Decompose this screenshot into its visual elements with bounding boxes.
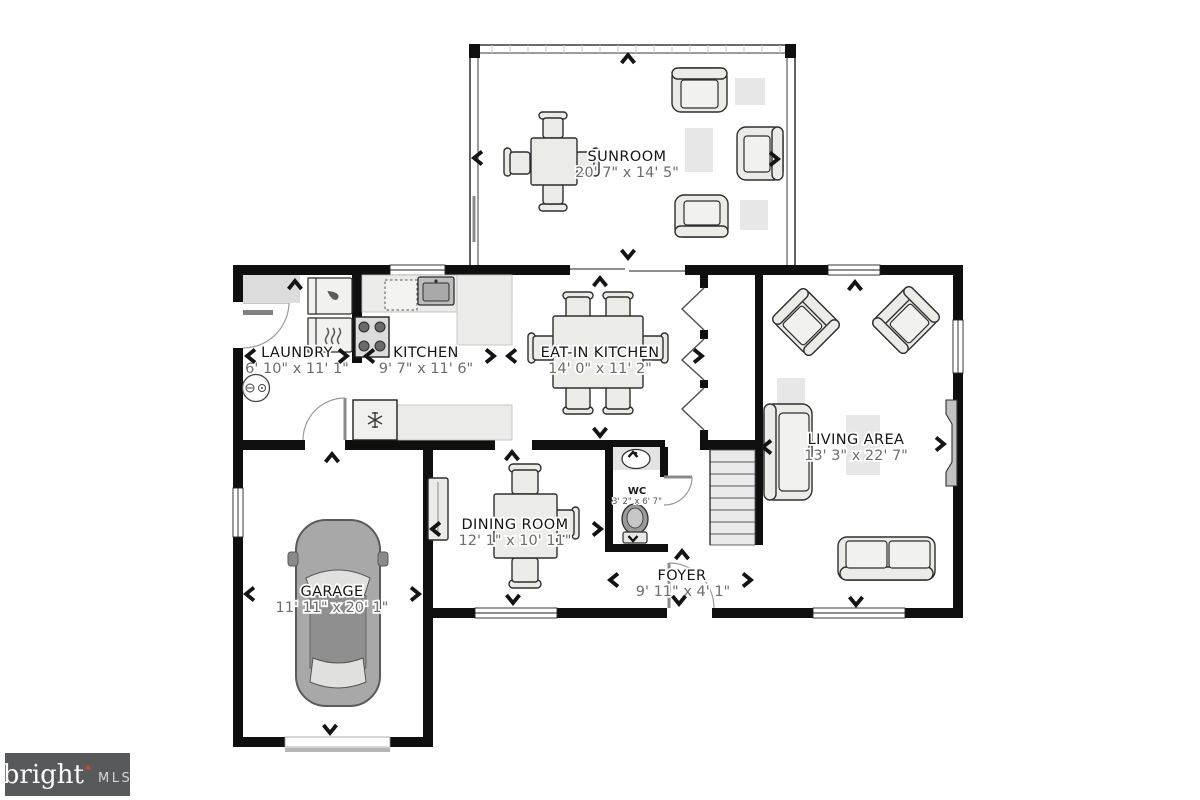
rug — [740, 200, 768, 230]
arrow-right-icon — [411, 588, 419, 601]
foyer: FOYER 9' 11" x 4' 1" — [636, 568, 730, 600]
wc-door — [664, 477, 692, 505]
room-dims-kitchen: 9' 7" x 11' 6" — [379, 361, 473, 377]
room-label-garage: GARAGE — [300, 584, 363, 600]
staircase — [710, 450, 755, 545]
refrigerator — [353, 400, 397, 440]
arrow-right-icon — [593, 523, 601, 536]
arrow-up-icon — [326, 454, 339, 462]
sunroom-corner-post — [785, 44, 796, 58]
room-label-foyer: FOYER — [657, 568, 706, 584]
arrow-up-icon — [676, 551, 689, 559]
room-label-wc: WC — [628, 486, 646, 497]
sunroom-armchair — [675, 195, 728, 237]
arrow-right-icon — [936, 438, 944, 451]
arrow-down-icon — [324, 725, 337, 733]
sunroom-corner-post — [469, 44, 480, 58]
utility-fixture — [243, 375, 270, 402]
arrow-left-icon — [610, 574, 618, 587]
sunroom-table-set — [504, 112, 599, 211]
sunroom-armchair — [672, 68, 727, 112]
sunroom-wall-ticks — [492, 45, 780, 53]
floor-plan-canvas: SUNROOM 20' 7" x 14' 5" — [0, 0, 1200, 800]
living-armchair — [871, 285, 942, 356]
kitchen-sink — [418, 277, 454, 305]
garage: GARAGE 11' 11" x 20' 1" — [276, 520, 389, 706]
sunroom-slider-opening — [570, 269, 685, 271]
window — [233, 488, 243, 537]
living-armchair — [771, 287, 842, 358]
sunroom-armchair — [737, 127, 783, 180]
brightmls-star-icon: ✶ — [83, 762, 93, 774]
laundry-exterior-door — [243, 302, 289, 348]
room-label-dining-room: DINING ROOM — [461, 517, 568, 533]
brightmls-logo-text: bright — [3, 762, 84, 788]
arrow-up-icon — [506, 452, 519, 460]
room-dims-wc: 3' 2" x 6' 7" — [612, 497, 662, 507]
window — [390, 265, 445, 275]
floor-plan-page: SUNROOM 20' 7" x 14' 5" — [0, 0, 1200, 800]
room-dims-garage: 11' 11" x 20' 1" — [276, 600, 389, 616]
kitchen: KITCHEN 9' 7" x 11' 6" — [353, 275, 512, 440]
brightmls-mls-text: MLS — [98, 772, 132, 785]
rug — [685, 128, 713, 172]
dining-room: DINING ROOM 12' 1" x 10' 11" — [428, 464, 579, 588]
bifold-door — [682, 388, 704, 430]
room-label-kitchen: KITCHEN — [393, 345, 459, 361]
kitchen-counter — [457, 275, 512, 345]
window — [953, 320, 963, 373]
sideboard — [428, 478, 448, 540]
bifold-door — [682, 288, 704, 330]
arrow-up-icon — [849, 282, 862, 290]
room-dims-sunroom: 20' 7" x 14' 5" — [575, 165, 679, 181]
room-dims-eat-in-kitchen: 14' 0" x 11' 2" — [548, 361, 652, 377]
eat-in-kitchen: EAT-IN KITCHEN 14' 0" x 11' 2" — [528, 292, 668, 414]
room-dims-living-area: 13' 3" x 22' 7" — [804, 448, 908, 464]
laundry-closet-rod — [243, 310, 273, 315]
rug — [735, 78, 765, 105]
window — [475, 608, 557, 618]
kitchen-counter — [397, 405, 512, 440]
room-label-eat-in-kitchen: EAT-IN KITCHEN — [541, 345, 660, 361]
arrow-right-icon — [486, 350, 494, 363]
room-label-living-area: LIVING AREA — [808, 432, 905, 448]
sunroom: SUNROOM 20' 7" x 14' 5" — [469, 44, 796, 267]
arrow-up-icon — [622, 55, 635, 63]
arrow-up-icon — [594, 278, 607, 286]
living-area: LIVING AREA 13' 3" x 22' 7" — [764, 285, 957, 580]
wc-sink — [622, 450, 650, 469]
arrow-right-icon — [743, 574, 751, 587]
room-label-sunroom: SUNROOM — [588, 149, 667, 165]
arrow-down-icon — [507, 595, 520, 603]
arrow-down-icon — [850, 597, 863, 605]
sofa — [838, 537, 935, 580]
arrow-left-icon — [246, 588, 254, 601]
brightmls-watermark: bright ✶ MLS — [5, 753, 130, 796]
laundry-closet-shelf — [243, 275, 300, 303]
garage-door — [285, 737, 390, 752]
wc: WC 3' 2" x 6' 7" — [612, 447, 662, 543]
arrow-down-icon — [622, 250, 635, 258]
room-label-laundry: LAUNDRY — [261, 345, 333, 361]
window — [813, 608, 905, 618]
arrow-down-icon — [594, 428, 607, 436]
sunroom-table — [531, 138, 577, 185]
arrow-left-icon — [508, 350, 516, 363]
arrow-right-icon — [694, 350, 702, 363]
room-dims-laundry: 6' 10" x 11' 1" — [245, 361, 349, 377]
laundry-interior-door — [303, 398, 345, 440]
dishwasher — [385, 280, 417, 310]
fireplace — [946, 400, 957, 486]
room-dims-dining-room: 12' 1" x 10' 11" — [459, 533, 572, 549]
laundry-room: LAUNDRY 6' 10" x 11' 1" — [243, 275, 353, 402]
washer — [308, 278, 352, 314]
window — [828, 265, 880, 275]
